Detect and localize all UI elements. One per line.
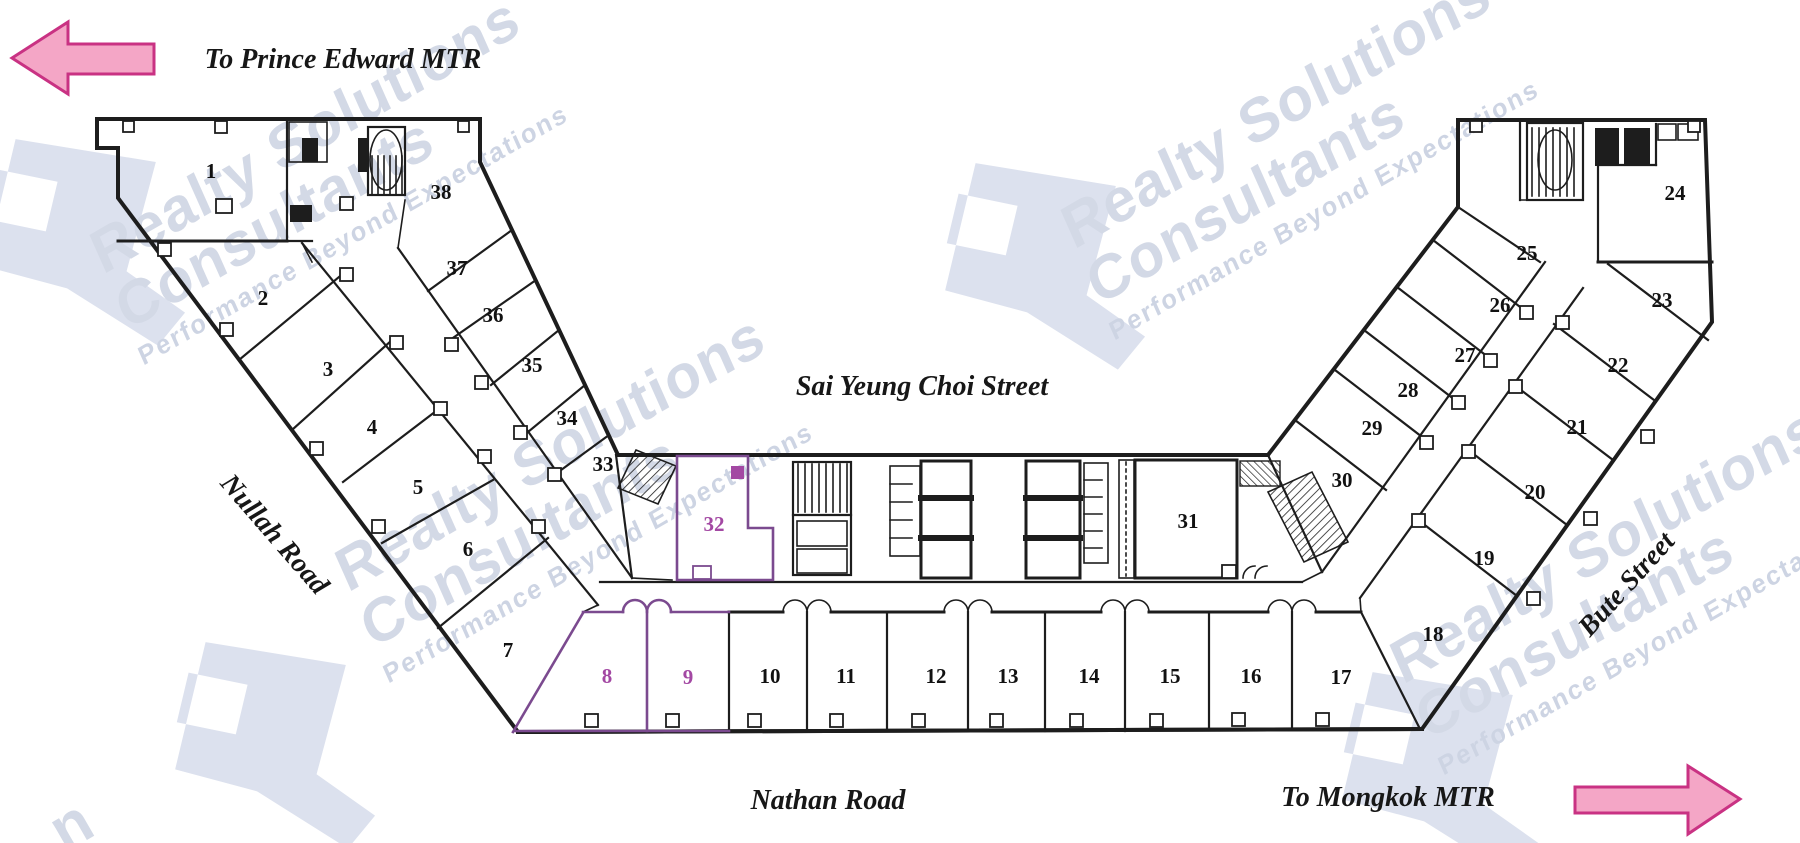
unit-label-6: 6: [463, 537, 474, 561]
unit-label-9: 9: [683, 665, 694, 689]
column-square: [1584, 512, 1597, 525]
column-square: [478, 450, 491, 463]
unit-label-19: 19: [1474, 546, 1495, 570]
unit-label-3: 3: [323, 357, 334, 381]
unit-label-4: 4: [367, 415, 378, 439]
unit-label-20: 20: [1525, 480, 1546, 504]
column-square: [445, 338, 458, 351]
unit-8-wall: [513, 613, 583, 732]
column-square: [990, 714, 1003, 727]
street-label-to-prince-edward-mtr: To Prince Edward MTR: [205, 44, 482, 75]
column-square: [1070, 714, 1083, 727]
column-square: [585, 714, 598, 727]
unit-label-12: 12: [926, 664, 947, 688]
unit-label-7: 7: [503, 638, 514, 662]
street-label-sai-yeung-choi-street: Sai Yeung Choi Street: [796, 371, 1050, 402]
unit-label-21: 21: [1567, 415, 1588, 439]
unit-label-25: 25: [1517, 241, 1538, 265]
column-square: [1527, 592, 1540, 605]
unit-label-8: 8: [602, 664, 613, 688]
column-square: [220, 323, 233, 336]
column-square: [1462, 445, 1475, 458]
column-square: [912, 714, 925, 727]
column-squares: [158, 243, 1654, 727]
column-square: [1556, 316, 1569, 329]
street-label-bute-street: Bute Street: [1572, 525, 1682, 643]
unit-label-31: 31: [1178, 509, 1199, 533]
unit-label-28: 28: [1398, 378, 1419, 402]
column-square: [390, 336, 403, 349]
column-square: [158, 243, 171, 256]
column-square: [475, 376, 488, 389]
street-label-nathan-road: Nathan Road: [750, 785, 907, 816]
arrow-left-icon: [12, 22, 154, 94]
unit-label-29: 29: [1362, 416, 1383, 440]
column-square: [1150, 714, 1163, 727]
column-square: [1484, 354, 1497, 367]
column-square: [310, 442, 323, 455]
unit-label-34: 34: [557, 406, 579, 430]
unit-label-36: 36: [483, 303, 504, 327]
unit-label-18: 18: [1423, 622, 1444, 646]
column-square: [548, 468, 561, 481]
column-square: [1641, 430, 1654, 443]
arrow-right-icon: [1575, 766, 1740, 834]
column-square: [1520, 306, 1533, 319]
unit-label-10: 10: [760, 664, 781, 688]
column-square: [340, 268, 353, 281]
unit-label-5: 5: [413, 475, 424, 499]
unit-32-room: [677, 456, 773, 580]
unit-label-1: 1: [206, 159, 217, 183]
central-corridor-and-shops: [518, 572, 1422, 732]
column-square: [372, 520, 385, 533]
unit-label-27: 27: [1455, 343, 1476, 367]
unit-label-33: 33: [593, 452, 614, 476]
column-square: [1420, 436, 1433, 449]
column-square: [1316, 713, 1329, 726]
column-square: [1232, 713, 1245, 726]
column-square: [666, 714, 679, 727]
unit-label-30: 30: [1332, 468, 1353, 492]
column-square: [830, 714, 843, 727]
unit-label-14: 14: [1079, 664, 1101, 688]
unit-label-32: 32: [704, 512, 725, 536]
central-stair-cores: [793, 460, 1280, 578]
street-label-to-mongkok-mtr: To Mongkok MTR: [1281, 782, 1495, 813]
unit-label-16: 16: [1241, 664, 1262, 688]
unit-label-38: 38: [431, 180, 452, 204]
unit-label-15: 15: [1160, 664, 1181, 688]
stair-core-top-left: [118, 121, 469, 262]
floor-plan-svg: 1234567891011121314151617181920212223242…: [0, 0, 1800, 843]
mtr-arrows: [12, 22, 1740, 834]
column-square: [1509, 380, 1522, 393]
unit-label-22: 22: [1608, 353, 1629, 377]
unit-label-11: 11: [836, 664, 856, 688]
column-square: [1412, 514, 1425, 527]
labels-layer: 1234567891011121314151617181920212223242…: [205, 44, 1686, 816]
column-square: [434, 402, 447, 415]
unit-label-24: 24: [1665, 181, 1687, 205]
unit-label-17: 17: [1331, 665, 1352, 689]
column-square: [1452, 396, 1465, 409]
unit-label-13: 13: [998, 664, 1019, 688]
door-arcs: [783, 600, 1316, 612]
building-outline: [97, 119, 1712, 732]
unit-label-37: 37: [447, 256, 468, 280]
column-square: [532, 520, 545, 533]
column-square: [514, 426, 527, 439]
unit-label-35: 35: [522, 353, 543, 377]
floor-plan-page: Realty Solutions Consultants Performance…: [0, 0, 1800, 843]
column-square: [748, 714, 761, 727]
unit-label-23: 23: [1652, 288, 1673, 312]
unit-label-2: 2: [258, 286, 269, 310]
unit-label-26: 26: [1490, 293, 1511, 317]
street-label-nullah-road: Nullah Road: [213, 467, 335, 601]
